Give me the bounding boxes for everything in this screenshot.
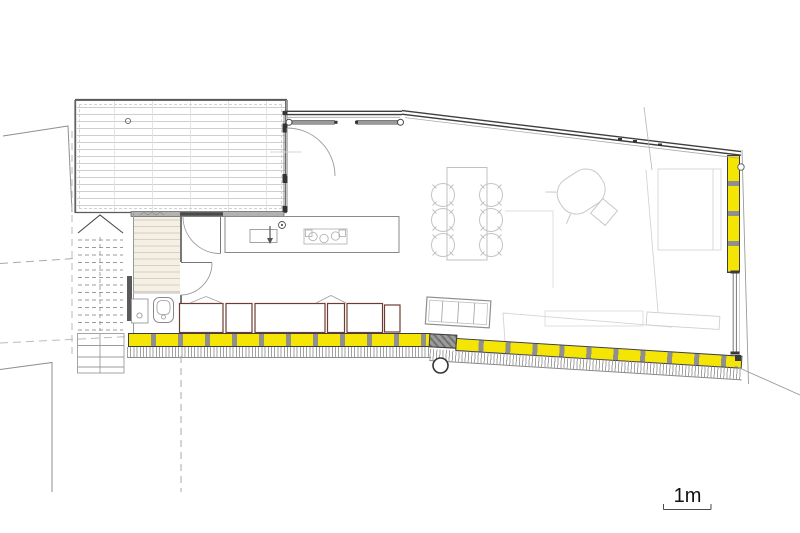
- dining-chair: [432, 209, 455, 232]
- deck-post-marker: [125, 118, 130, 123]
- section-marker: [644, 107, 652, 170]
- glass-wall-top: [284, 111, 402, 117]
- stair-treads: [78, 240, 123, 330]
- door-bathroom: [181, 263, 212, 296]
- sliding-glass-door: [286, 119, 404, 125]
- dining-chair: [432, 184, 455, 207]
- wall-dark-segment: [180, 212, 223, 216]
- footstool: [591, 199, 618, 226]
- sloped-roof-edge: [402, 107, 741, 170]
- lounge-chair: [546, 163, 618, 226]
- bench: [425, 297, 491, 328]
- dining-chair: [480, 234, 503, 257]
- toilet: [154, 298, 174, 323]
- deck-edges: [75, 100, 287, 214]
- plan-linework: [0, 0, 800, 533]
- dining-set: [432, 168, 503, 261]
- kitchen-island: [225, 217, 399, 253]
- column-marker: [433, 358, 448, 373]
- low-cabinet-row: [180, 304, 401, 333]
- exterior-stair: [78, 215, 125, 373]
- scale-bar-label: 1m: [664, 485, 711, 508]
- corner-post-marker: [738, 164, 744, 170]
- stair-lower-flight: [78, 334, 125, 374]
- dining-chair: [480, 184, 503, 207]
- washbasin: [132, 299, 149, 323]
- cabinet-door-marks: [190, 296, 346, 304]
- floor-plan-canvas: 1m: [0, 0, 800, 533]
- dining-chair: [432, 234, 455, 257]
- door-hall: [183, 216, 221, 254]
- dining-chair: [480, 209, 503, 232]
- window-right: [731, 271, 742, 362]
